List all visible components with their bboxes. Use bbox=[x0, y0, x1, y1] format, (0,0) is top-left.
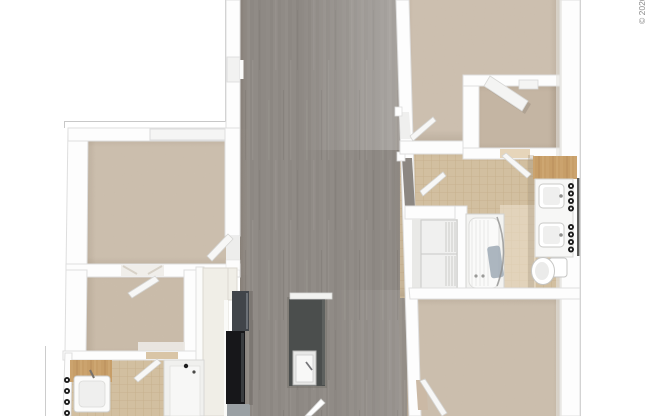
svg-text:© 2020: © 2020 bbox=[637, 0, 647, 24]
